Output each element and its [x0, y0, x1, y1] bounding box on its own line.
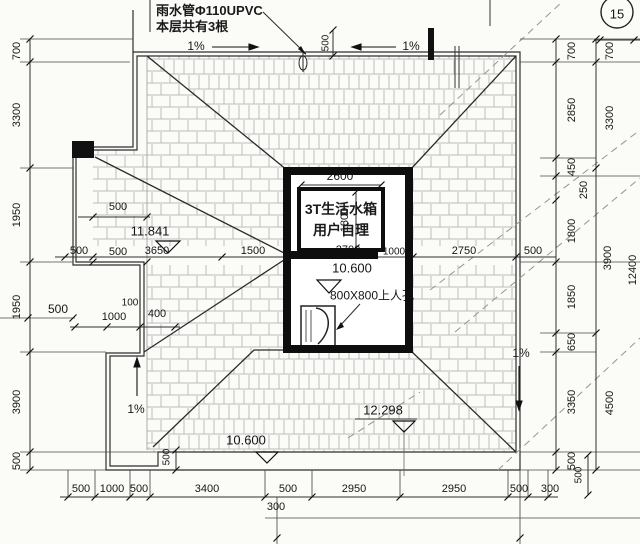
water-tank-label-line1: 3T生活水箱	[305, 199, 377, 219]
penthouse-walls	[0, 0, 640, 544]
roof-plan-canvas: 雨水管Φ110UPVC 本层共有3根 15 1% 1% 1% 1% 500 70…	[0, 0, 640, 544]
water-tank-label-line2: 用户自理	[313, 220, 369, 240]
penthouse-middle-wall	[283, 251, 378, 259]
water-tank-label: 3T生活水箱 用户自理	[299, 190, 383, 249]
